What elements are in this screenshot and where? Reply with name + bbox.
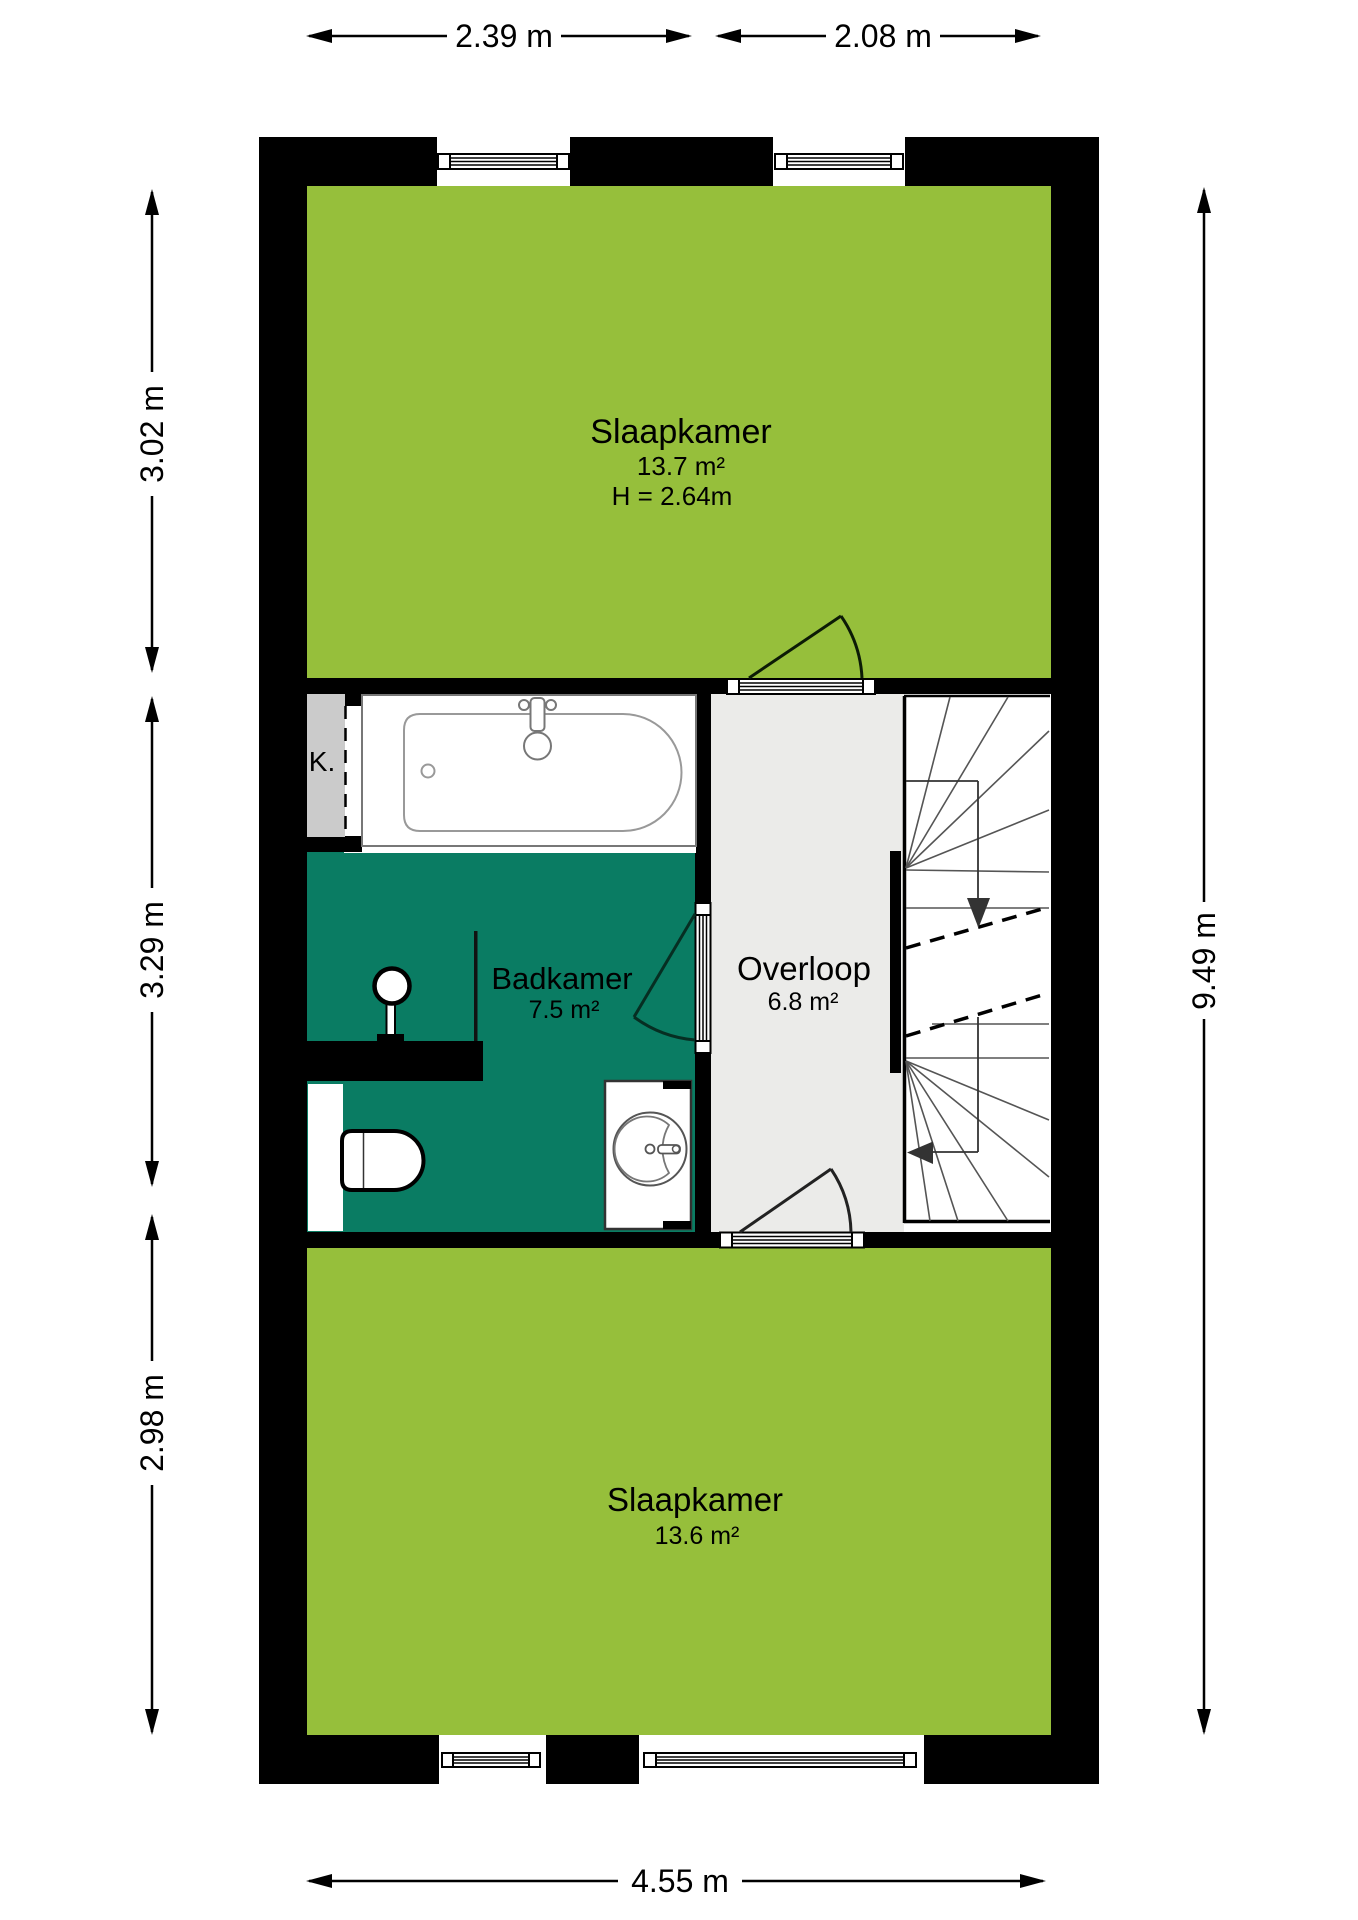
svg-text:Slaapkamer: Slaapkamer: [607, 1481, 783, 1518]
svg-text:3.02 m: 3.02 m: [134, 385, 170, 483]
svg-text:4.55 m: 4.55 m: [631, 1863, 729, 1899]
svg-text:13.6 m²: 13.6 m²: [655, 1522, 740, 1550]
svg-text:H = 2.64m: H = 2.64m: [612, 481, 733, 511]
svg-text:Badkamer: Badkamer: [491, 961, 632, 996]
svg-text:2.98 m: 2.98 m: [134, 1374, 170, 1472]
svg-text:2.08 m: 2.08 m: [834, 18, 932, 54]
svg-text:6.8 m²: 6.8 m²: [768, 988, 839, 1016]
svg-text:2.39 m: 2.39 m: [455, 18, 553, 54]
svg-text:Overloop: Overloop: [737, 950, 871, 987]
svg-text:7.5 m²: 7.5 m²: [529, 996, 600, 1024]
svg-text:3.29 m: 3.29 m: [134, 901, 170, 999]
svg-text:13.7 m²: 13.7 m²: [637, 451, 725, 481]
svg-text:K.: K.: [309, 746, 335, 777]
svg-text:9.49 m: 9.49 m: [1186, 912, 1222, 1010]
svg-text:Slaapkamer: Slaapkamer: [590, 413, 771, 451]
